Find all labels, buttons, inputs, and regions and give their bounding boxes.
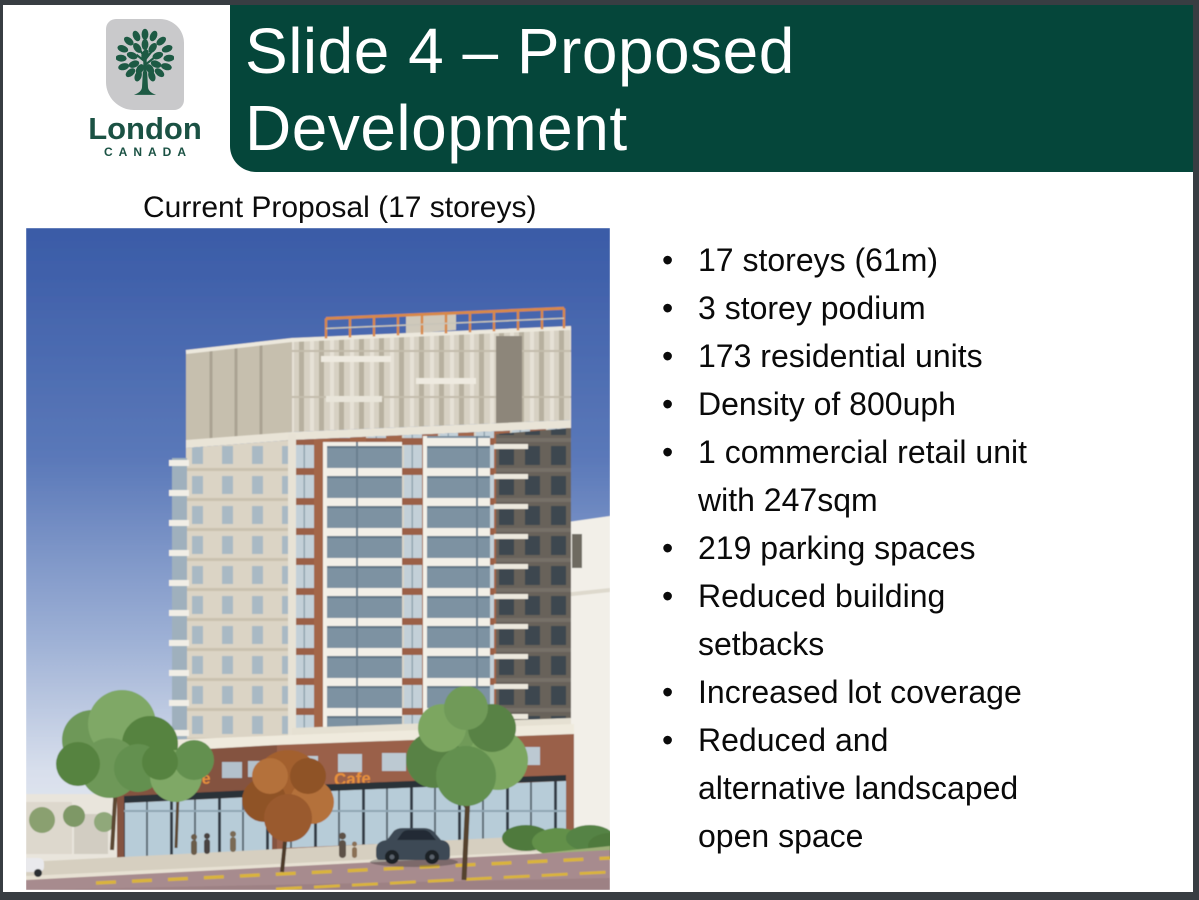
image-caption: Current Proposal (17 storeys) [143, 191, 537, 225]
tree-icon [116, 27, 174, 103]
bullet-item: Increased lot coverage [650, 668, 1180, 716]
slide-title-bar: Slide 4 – Proposed Development [230, 5, 1193, 172]
logo-tile [106, 19, 184, 110]
bullet-item: 17 storeys (61m) [650, 236, 1180, 284]
logo-country-label: CANADA [65, 145, 225, 159]
slide-title-line-2: Development [245, 90, 1193, 167]
slide-page: London CANADA Slide 4 – Proposed Develop… [3, 5, 1193, 892]
bullet-item: 3 storey podium [650, 284, 1180, 332]
bullet-item: 173 residential units [650, 332, 1180, 380]
bullet-item: Density of 800uph [650, 380, 1180, 428]
logo-wordmark: London [65, 114, 225, 144]
bullet-item: Reduced and alternative landscaped open … [650, 716, 1180, 860]
bullet-list: 17 storeys (61m) 3 storey podium 173 res… [650, 236, 1180, 860]
building-rendering-image: Cafe Cafe [26, 228, 610, 890]
bullet-item: Reduced building setbacks [650, 572, 1180, 668]
slide-title-line-1: Slide 4 – Proposed [245, 13, 1193, 90]
bullet-item: 219 parking spaces [650, 524, 1180, 572]
bullet-item: 1 commercial retail unit with 247sqm [650, 428, 1180, 524]
screenshot-root: { "logo": { "name": "London", "subtitle"… [0, 0, 1199, 900]
building-rendering: Cafe Cafe [26, 228, 610, 890]
city-of-london-logo: London CANADA [65, 19, 225, 159]
